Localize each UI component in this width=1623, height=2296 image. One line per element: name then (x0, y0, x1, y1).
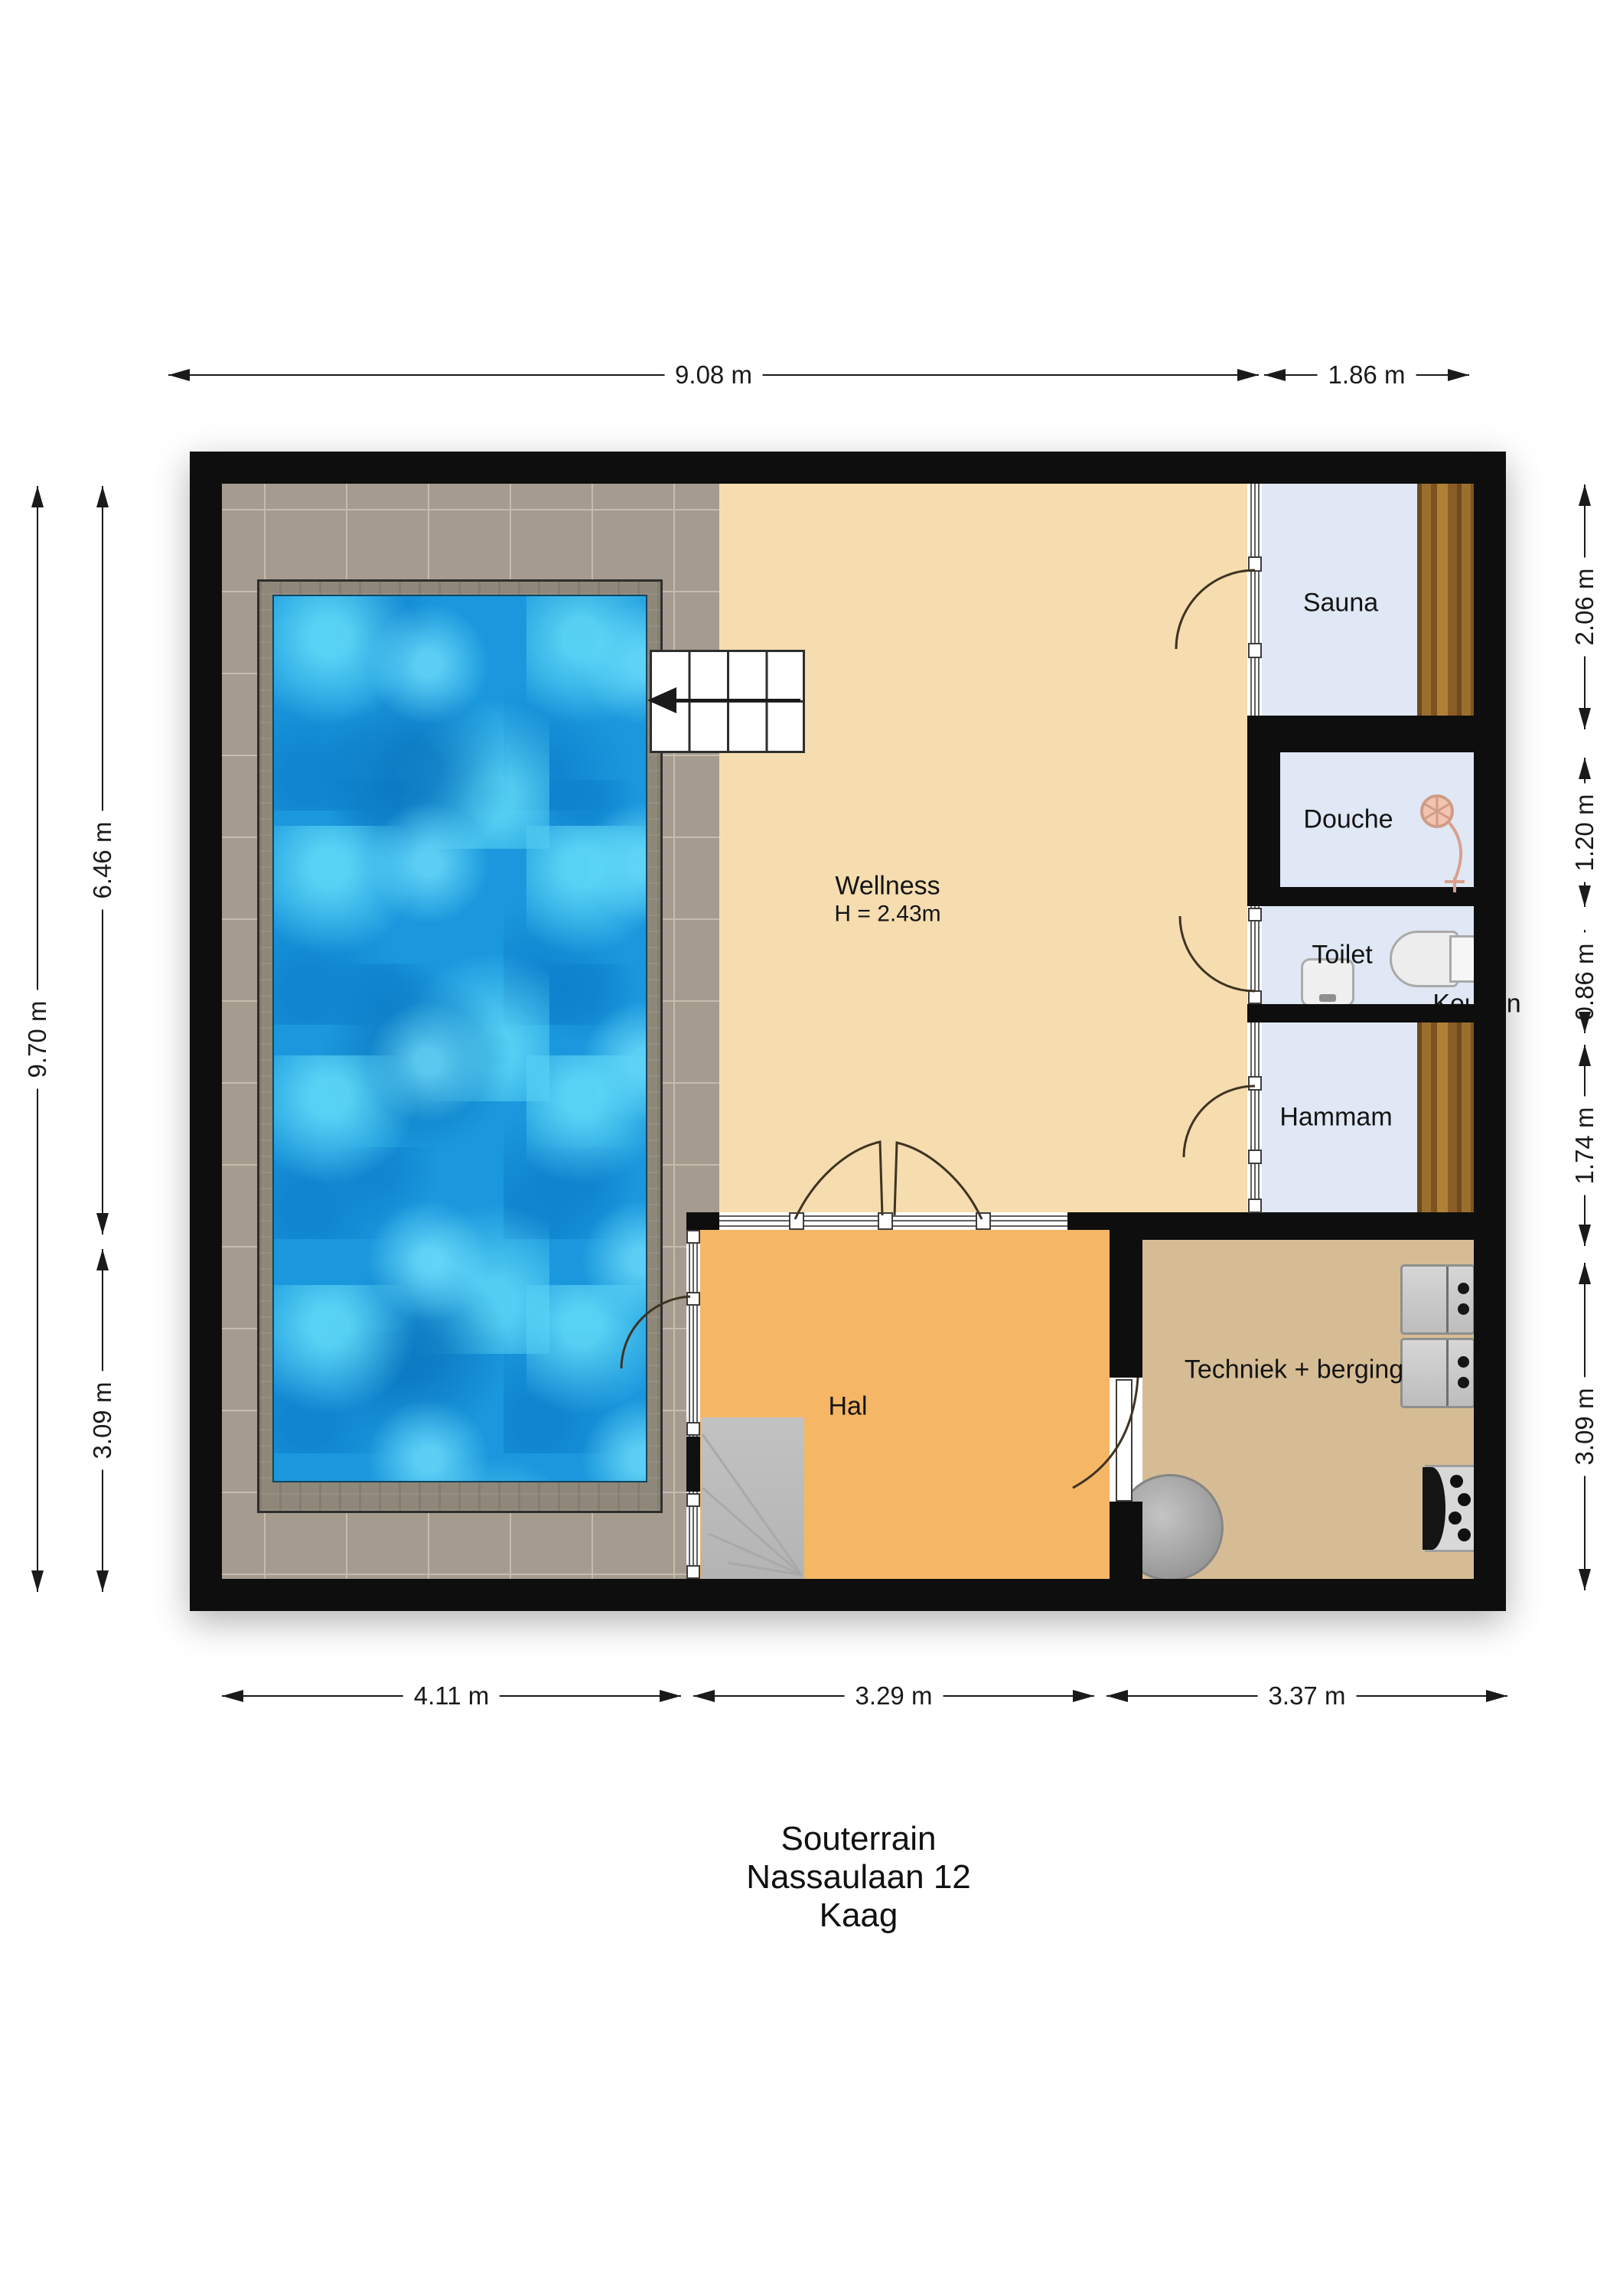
stairs-up-arrow-head (647, 687, 676, 713)
hammam-door-arc (1184, 1086, 1255, 1157)
door-arcs-overlay (0, 0, 1623, 2296)
hal-double-door-arc-right (895, 1143, 982, 1219)
shower-handle (1445, 877, 1465, 892)
stair-tread-line (702, 1488, 802, 1575)
hal-double-door-arc-left (795, 1142, 882, 1219)
deck-door-arc (621, 1296, 690, 1368)
techniek-door-arc (1073, 1378, 1138, 1488)
toilet-door-arc (1180, 916, 1255, 991)
floorplan-canvas: 9.08 m 1.86 m 4.11 m 3.29 m 3.37 m 9.70 … (0, 0, 1623, 2296)
sauna-door-arc (1176, 570, 1255, 649)
shower-hose (1449, 822, 1461, 880)
